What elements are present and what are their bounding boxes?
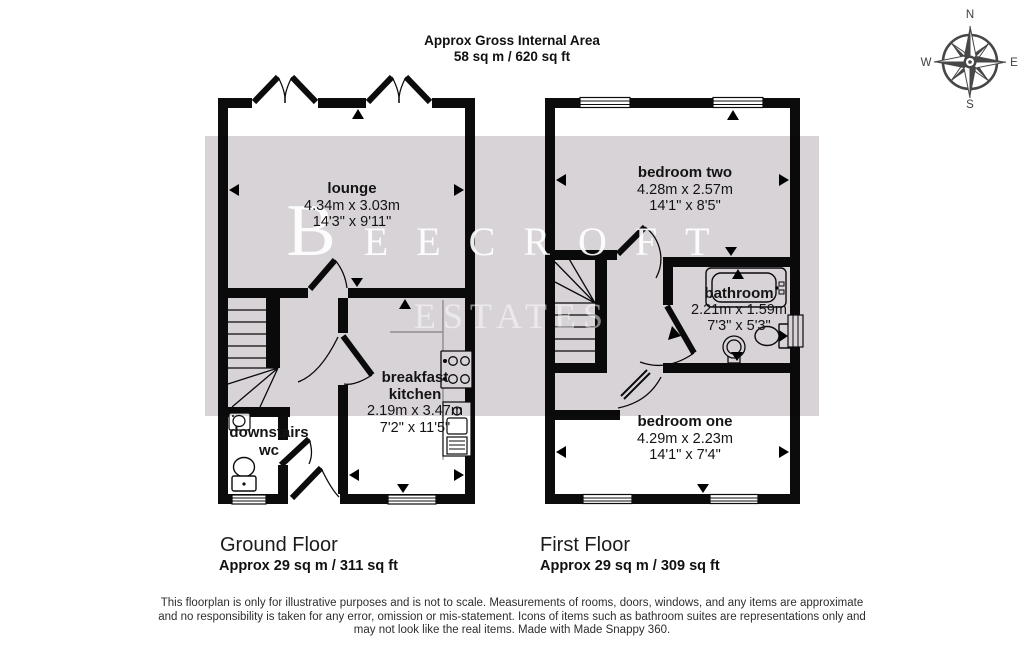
ground-floor-windows <box>232 495 436 504</box>
bedroom-two-metric: 4.28m x 2.57m <box>605 182 765 199</box>
header-title: Approx Gross Internal Area <box>0 33 1024 49</box>
bathroom-imperial: 7'3" x 5'3" <box>669 318 809 334</box>
compass-s-label: S <box>966 99 974 110</box>
wc-name-1: downstairs <box>219 424 319 442</box>
ground-floor-title: Ground Floor <box>220 534 338 557</box>
first-floor-area: Approx 29 sq m / 309 sq ft <box>540 558 720 574</box>
disclaimer-line-2: and no responsibility is taken for any e… <box>0 611 1024 625</box>
bathroom-name: bathroom <box>669 286 809 302</box>
wc-label: downstairs wc <box>219 424 319 459</box>
lounge-name: lounge <box>272 181 432 198</box>
disclaimer-line-1: This floorplan is only for illustrative … <box>0 597 1024 611</box>
bedroom-one-metric: 4.29m x 2.23m <box>605 431 765 448</box>
bedroom-two-label: bedroom two 4.28m x 2.57m 14'1" x 8'5" <box>605 165 765 215</box>
floorplan-page: Approx Gross Internal Area 58 sq m / 620… <box>0 0 1024 655</box>
header-area: 58 sq m / 620 sq ft <box>0 49 1024 65</box>
lounge-metric: 4.34m x 3.03m <box>272 198 432 215</box>
compass-n-label: N <box>966 9 974 21</box>
bathroom-label: bathroom 2.21m x 1.59m 7'3" x 5'3" <box>669 286 809 334</box>
kitchen-name-1: breakfast <box>345 370 485 387</box>
wc-toilet-icon <box>232 458 256 492</box>
compass-e-label: E <box>1010 57 1018 69</box>
bathroom-metric: 2.21m x 1.59m <box>669 302 809 318</box>
disclaimer: This floorplan is only for illustrative … <box>0 597 1024 638</box>
ground-floor-area: Approx 29 sq m / 311 sq ft <box>219 558 398 574</box>
bedroom-two-name: bedroom two <box>605 165 765 182</box>
compass-rose-icon: N S W E <box>918 6 1022 110</box>
kitchen-name-2: kitchen <box>345 387 485 404</box>
bedroom-one-label: bedroom one 4.29m x 2.23m 14'1" x 7'4" <box>605 414 765 464</box>
bedroom-two-imperial: 14'1" x 8'5" <box>605 198 765 215</box>
lounge-imperial: 14'3" x 9'11" <box>272 214 432 231</box>
lounge-label: lounge 4.34m x 3.03m 14'3" x 9'11" <box>272 181 432 231</box>
gross-internal-area: Approx Gross Internal Area 58 sq m / 620… <box>0 33 1024 65</box>
kitchen-imperial: 7'2" x 11'5" <box>345 420 485 437</box>
kitchen-label: breakfast kitchen 2.19m x 3.47m 7'2" x 1… <box>345 370 485 436</box>
first-floor-title: First Floor <box>540 534 630 557</box>
compass-w-label: W <box>921 57 932 69</box>
bedroom-one-name: bedroom one <box>605 414 765 431</box>
disclaimer-line-3: may not look like the real items. Made w… <box>0 624 1024 638</box>
kitchen-metric: 2.19m x 3.47m <box>345 403 485 420</box>
bedroom-one-imperial: 14'1" x 7'4" <box>605 447 765 464</box>
wc-name-2: wc <box>219 442 319 460</box>
